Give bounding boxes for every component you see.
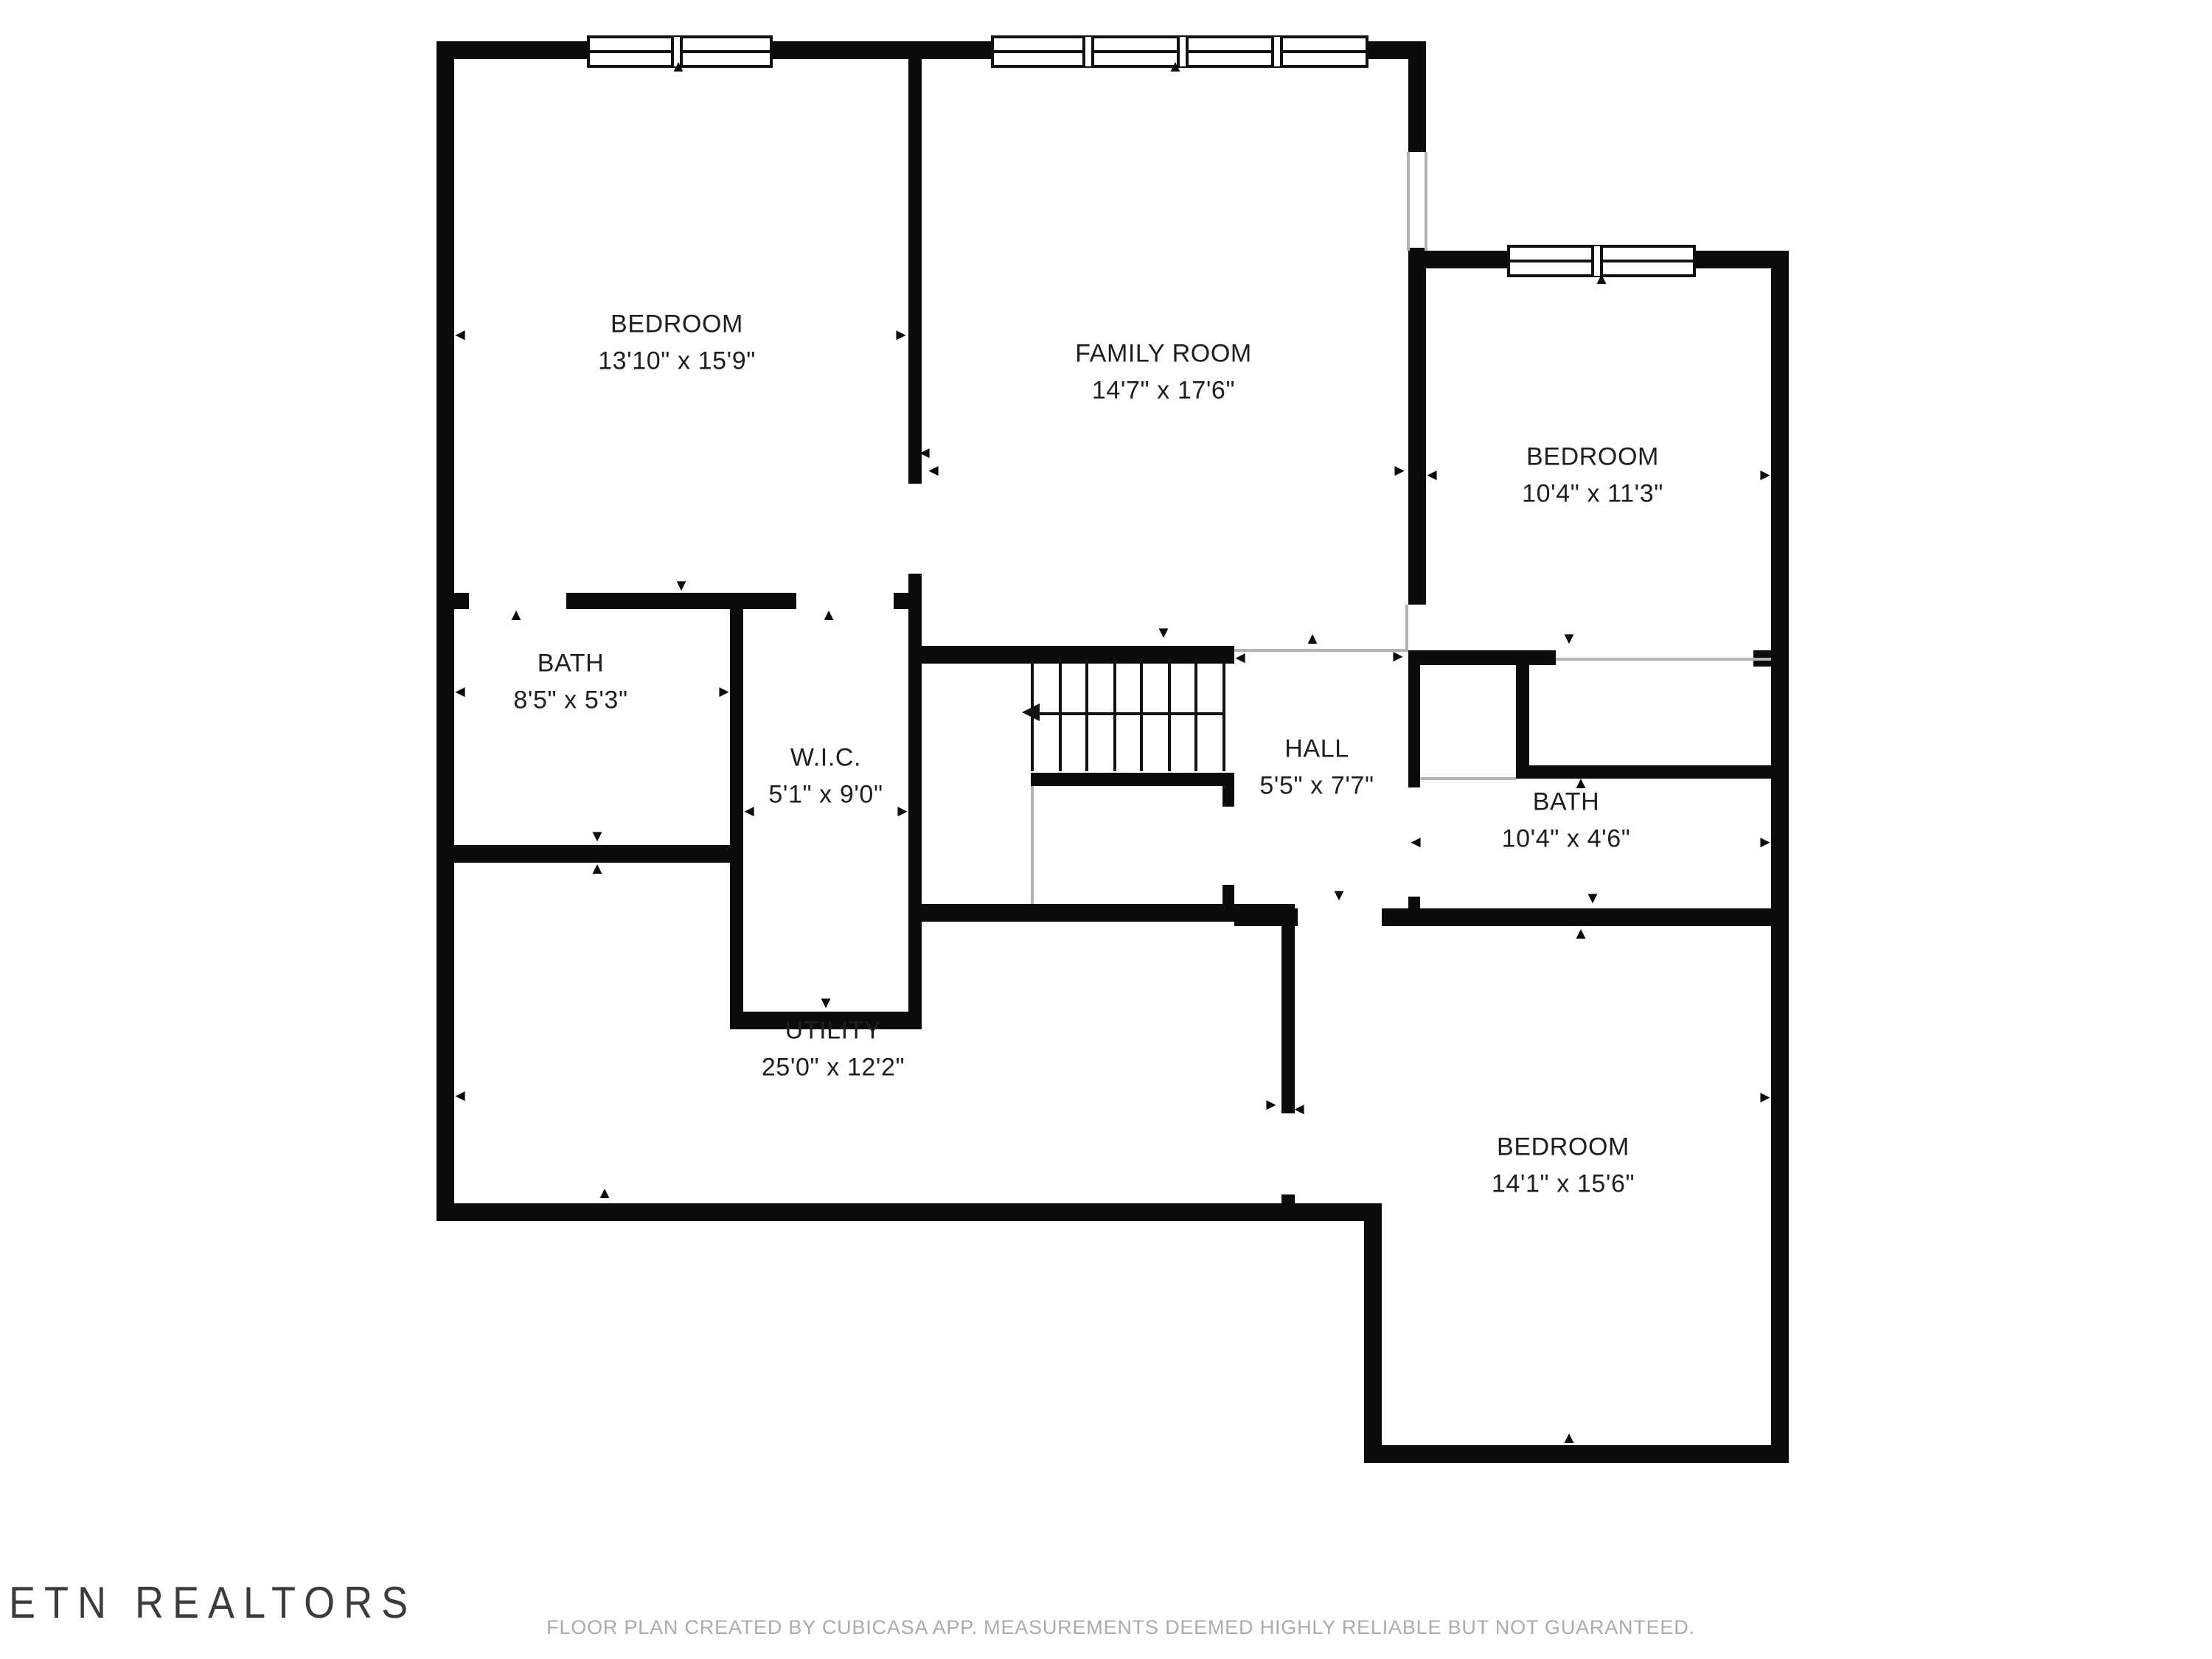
wall [1281,922,1295,1113]
opening-marker-icon: ▼ [1585,891,1601,908]
room-boundary-line [1031,786,1034,904]
room-dimensions: 10'4" x 4'6" [1502,821,1631,858]
wall [1364,1221,1382,1463]
opening-marker-icon: ◄ [917,446,933,462]
opening-marker-icon: ▲ [1304,632,1321,648]
room-name: BEDROOM [1522,440,1663,476]
opening-marker-icon: ▲ [589,862,605,878]
room-dimensions: 25'0" x 12'2" [762,1050,905,1086]
opening-marker-icon: ► [1263,1098,1279,1114]
window-mullion [1271,37,1283,66]
wall [1382,908,1789,926]
room-name: W.I.C. [768,741,883,777]
wall [1222,786,1234,807]
opening-marker-icon: ▼ [673,579,689,595]
opening-marker-icon: ◄ [1408,835,1424,852]
opening-marker-icon: ► [893,328,909,344]
room-dimensions: 5'5" x 7'7" [1259,768,1374,804]
wall [1234,908,1298,926]
wall [1408,248,1426,605]
stair-tread-line [1222,658,1225,771]
wall [908,574,922,1029]
wall [1364,1445,1789,1463]
room-name: BATH [1502,785,1631,821]
opening-marker-icon: ▲ [508,608,524,625]
opening-marker-icon: ► [1757,835,1773,852]
opening-marker-icon: ▼ [818,996,834,1012]
room-boundary-line [1425,152,1427,251]
room-boundary-line [1556,658,1771,661]
room-boundary-line [1420,777,1516,780]
room-label-bedroom-bottom-right: BEDROOM14'1" x 15'6" [1492,1130,1635,1203]
wall [1408,41,1426,152]
opening-marker-icon: ► [1390,650,1406,666]
room-name: FAMILY ROOM [1075,337,1252,373]
room-name: BEDROOM [1492,1130,1635,1166]
room-dimensions: 14'1" x 15'6" [1492,1166,1635,1203]
opening-marker-icon: ◄ [1291,1102,1307,1119]
wall [1408,650,1420,787]
room-label-bath-left: BATH8'5" x 5'3" [513,647,627,720]
room-name: HALL [1259,732,1374,768]
room-label-bedroom-right: BEDROOM10'4" x 11'3" [1522,440,1663,513]
wall [454,593,469,609]
wall [894,593,908,609]
room-boundary-line [1234,649,1408,652]
room-dimensions: 10'4" x 11'3" [1522,476,1663,512]
room-name: BATH [513,647,627,683]
opening-marker-icon: ► [1757,468,1773,484]
wall [1516,665,1529,779]
room-boundary-line [1405,605,1408,650]
room-label-bedroom-top-left: BEDROOM13'10" x 15'9" [598,307,756,380]
wall [1408,650,1556,665]
stair-tread-line [1113,658,1116,771]
opening-marker-icon: ▲ [1561,1431,1577,1447]
room-label-hall: HALL5'5" x 7'7" [1259,732,1374,805]
opening-marker-icon: ► [894,804,911,821]
opening-marker-icon: ► [1391,464,1408,480]
opening-marker-icon: ▲ [1573,927,1589,943]
room-label-utility: UTILITY25'0" x 12'2" [762,1014,905,1087]
stair-tread-line [1195,658,1198,771]
opening-marker-icon: ◄ [925,464,942,480]
stair-tread-line [1168,658,1171,771]
wall [437,1203,1382,1221]
floorplan-canvas: ▲▲▲▼►◄◄►◄►◄►◄►◄►▼◄▲◄►▼▲▼▲▼▲▲▼▼►◄▲◄►▲▲BED… [0,0,2212,1659]
opening-marker-icon: ▼ [589,829,605,846]
wall [922,646,1234,664]
wall [437,41,454,1221]
room-dimensions: 5'1" x 9'0" [768,777,883,813]
wall [1516,765,1771,779]
opening-marker-icon: ▼ [1561,632,1577,648]
opening-marker-icon: ▼ [1331,888,1347,905]
wall [1771,251,1789,1463]
opening-marker-icon: ▲ [597,1186,613,1203]
wall [1281,1194,1295,1221]
opening-marker-icon: ◄ [452,685,468,701]
opening-marker-icon: ► [1757,1091,1773,1107]
stair-arrow-head [1022,703,1040,721]
stair-tread-line [1141,658,1144,771]
room-dimensions: 13'10" x 15'9" [598,344,756,380]
floorplan-page: ▲▲▲▼►◄◄►◄►◄►◄►◄►▼◄▲◄►▼▲▼▲▼▲▲▼▼►◄▲◄►▲▲BED… [0,0,2212,1659]
wall [1408,897,1420,926]
wall [908,59,922,484]
opening-marker-icon: ▲ [670,60,686,76]
opening-marker-icon: ▲ [821,608,837,625]
room-boundary-line [1407,152,1410,251]
stair-direction-arrow [1040,712,1222,714]
opening-marker-icon: ◄ [452,1089,468,1105]
opening-marker-icon: ▲ [1167,60,1183,76]
opening-marker-icon: ▼ [1155,626,1172,642]
room-name: UTILITY [762,1014,905,1050]
window-mullion [1082,37,1094,66]
room-dimensions: 14'7" x 17'6" [1075,373,1252,409]
opening-marker-icon: ▲ [1593,272,1610,288]
room-dimensions: 8'5" x 5'3" [513,683,627,719]
opening-marker-icon: ◄ [1424,468,1440,484]
stair-tread-line [1058,658,1061,771]
wall [1031,773,1234,786]
wall [566,593,796,609]
footer-disclaimer: FLOOR PLAN CREATED BY CUBICASA APP. MEAS… [0,1616,2212,1638]
opening-marker-icon: ► [716,685,732,701]
opening-marker-icon: ◄ [452,328,468,344]
opening-marker-icon: ◄ [1232,651,1248,667]
room-label-bath-right: BATH10'4" x 4'6" [1502,785,1631,858]
room-label-family-room: FAMILY ROOM14'7" x 17'6" [1075,337,1252,410]
opening-marker-icon: ◄ [741,804,757,821]
stair-tread-line [1085,658,1088,771]
room-label-wic: W.I.C.5'1" x 9'0" [768,741,883,814]
room-name: BEDROOM [598,307,756,344]
